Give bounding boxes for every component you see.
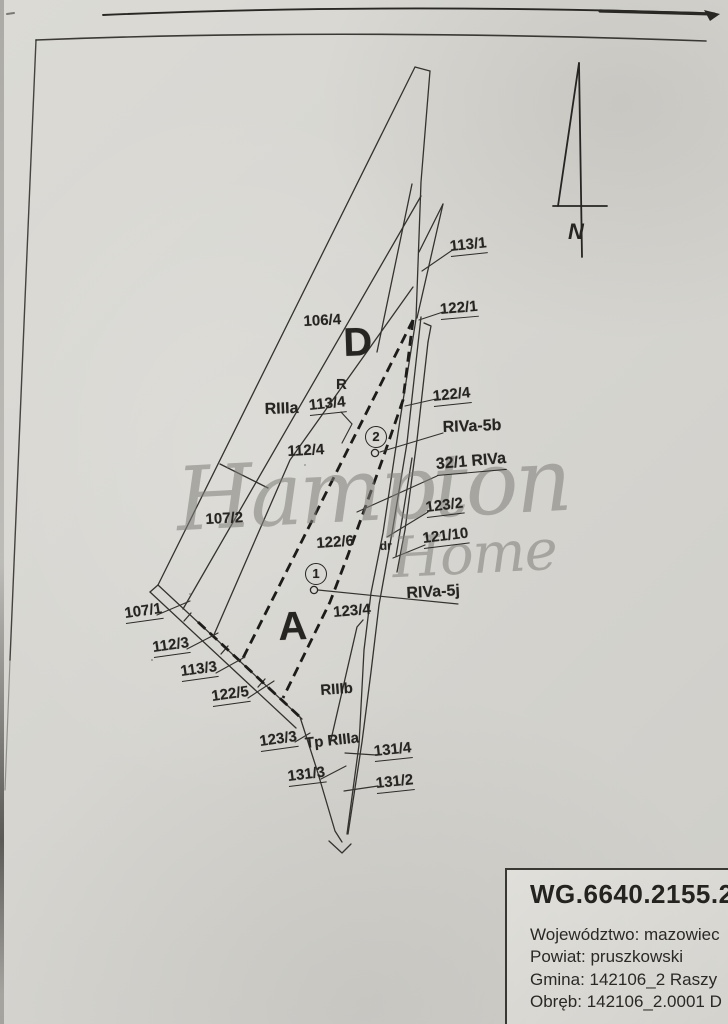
map-label-riva-5b: RIVa-5b	[442, 418, 501, 437]
registry-precinct: Obręb: 142106_2.0001 D	[530, 991, 728, 1013]
map-label-region-d: D	[343, 321, 373, 364]
map-label-r-class: R	[336, 377, 347, 393]
label-leader-lines	[157, 249, 458, 791]
registry-county: Powiat: pruszkowski	[530, 946, 728, 968]
registry-voivodeship: Województwo: mazowiec	[530, 924, 728, 946]
map-label-point-2: 2	[365, 426, 387, 448]
map-label-113-4: 113/4	[308, 394, 346, 415]
map-label-riiia: RIIIa	[264, 401, 298, 419]
registry-info-box: WG.6640.2155.20 Województwo: mazowiec Po…	[505, 868, 728, 1024]
map-label-riiib: RIIIb	[320, 681, 354, 699]
north-arrow-label: N	[568, 219, 584, 245]
map-label-point-1: 1	[305, 563, 327, 585]
registry-commune: Gmina: 142106_2 Raszy	[530, 969, 728, 991]
photo-left-edge-shadow	[0, 0, 4, 1024]
map-label-region-a: A	[278, 605, 308, 648]
case-number: WG.6640.2155.20	[530, 879, 728, 910]
map-label-123-4: 123/4	[333, 602, 372, 621]
map-label-107-2: 107/2	[205, 510, 243, 528]
map-label-122-6: 122/6	[316, 533, 355, 551]
map-label-113-1: 113/1	[449, 235, 487, 256]
map-label-dr: dr	[380, 540, 392, 553]
map-label-106-4: 106/4	[303, 312, 341, 330]
map-label-122-1: 122/1	[439, 299, 478, 320]
map-label-riva-5j: RIVa-5j	[406, 583, 460, 603]
scanned-cadastral-map-photo: Hampton Home 113/1122/1106/4DRRIIIa113/4…	[0, 0, 728, 1024]
map-label-112-4: 112/4	[287, 442, 324, 460]
registry-lines: Województwo: mazowiec Powiat: pruszkowsk…	[530, 924, 728, 1014]
